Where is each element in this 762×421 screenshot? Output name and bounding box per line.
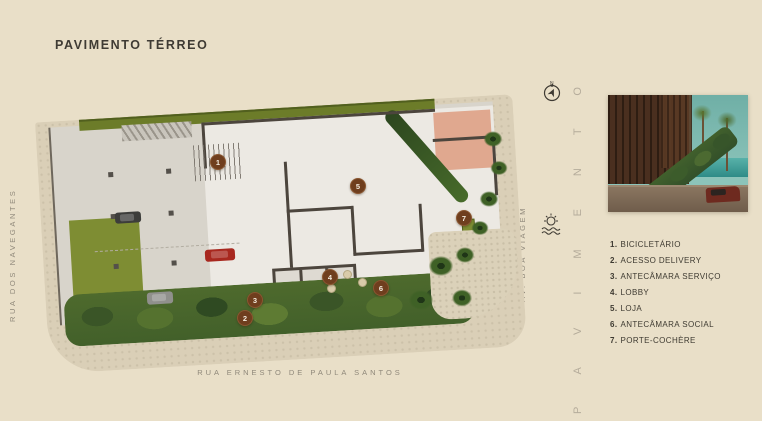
tree <box>424 252 458 280</box>
sun-over-waves-icon <box>538 210 564 243</box>
legend-item: 6.ANTECÂMARA SOCIAL <box>610 320 721 329</box>
legend-item-number: 3. <box>610 272 617 281</box>
column <box>166 169 171 174</box>
photo-car <box>706 186 740 203</box>
building-photo-thumbnail <box>608 95 748 212</box>
palm-tree <box>476 188 502 210</box>
column <box>168 210 173 215</box>
legend-item-number: 6. <box>610 320 617 329</box>
lobby-table <box>343 270 352 279</box>
legend-item: 7.PORTE-COCHÈRE <box>610 336 721 345</box>
legend-item: 1.BICICLETÁRIO <box>610 240 721 249</box>
column <box>114 264 119 269</box>
legend-item-number: 7. <box>610 336 617 345</box>
plan-marker-2: 2 <box>237 310 253 326</box>
legend-item: 2.ACESSO DELIVERY <box>610 256 721 265</box>
page-title: PAVIMENTO TÉRREO <box>55 38 208 52</box>
legend-item-label: LOBBY <box>620 288 649 297</box>
legend-item-number: 5. <box>610 304 617 313</box>
parked-car-red <box>205 248 236 262</box>
legend-item-label: ACESSO DELIVERY <box>620 256 701 265</box>
plan-marker-1: 1 <box>210 154 226 170</box>
legend-item-label: PORTE-COCHÈRE <box>620 336 695 345</box>
legend-item-number: 2. <box>610 256 617 265</box>
column <box>171 260 176 265</box>
legend-item: 3.ANTECÂMARA SERVIÇO <box>610 272 721 281</box>
column <box>108 172 113 177</box>
palm-tree <box>468 218 492 238</box>
legend-list: 1.BICICLETÁRIO2.ACESSO DELIVERY3.ANTECÂM… <box>610 240 721 352</box>
street-label-rua-dos-navegantes: RUA DOS NAVEGANTES <box>8 162 17 322</box>
lobby-table <box>358 278 367 287</box>
palm-tree <box>487 158 511 178</box>
parked-van <box>147 291 174 305</box>
palm-tree <box>480 128 506 150</box>
photo-tree-canopy <box>689 102 715 124</box>
floorplan-page: PAVIMENTO TÉRREO RUA DOS NAVEGANTES RUA … <box>0 0 762 421</box>
compass-north-icon: N <box>541 79 563 108</box>
legend-item-number: 1. <box>610 240 617 249</box>
plan-marker-6: 6 <box>373 280 389 296</box>
legend-item-number: 4. <box>610 288 617 297</box>
plan-marker-5: 5 <box>350 178 366 194</box>
plan-marker-4: 4 <box>322 269 338 285</box>
plan-marker-7: 7 <box>456 210 472 226</box>
lobby-table <box>327 284 336 293</box>
vertical-watermark-text: PAVIMENTO <box>572 6 584 414</box>
legend-item-label: BICICLETÁRIO <box>620 240 680 249</box>
legend-item-label: LOJA <box>620 304 642 313</box>
tree <box>448 286 476 310</box>
legend-item: 4.LOBBY <box>610 288 721 297</box>
plan-marker-3: 3 <box>247 292 263 308</box>
parked-car-dark <box>115 211 142 224</box>
tree <box>404 286 438 314</box>
legend-item-label: ANTECÂMARA SERVIÇO <box>620 272 720 281</box>
legend-item-label: ANTECÂMARA SOCIAL <box>620 320 714 329</box>
legend-item: 5.LOJA <box>610 304 721 313</box>
